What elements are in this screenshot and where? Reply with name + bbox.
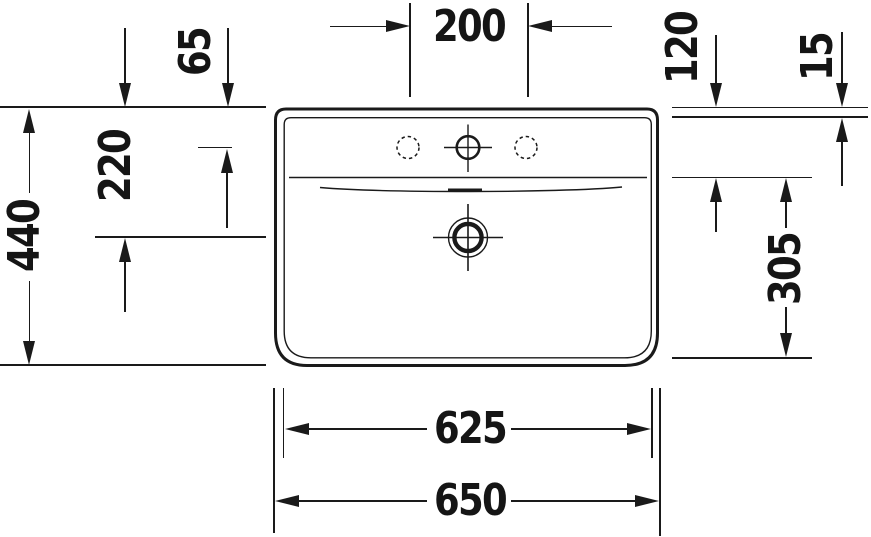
arrow-tail	[715, 200, 717, 232]
arrowhead-left	[528, 20, 552, 32]
dim-label-650: 650	[434, 479, 506, 523]
arrowhead-up	[221, 149, 233, 173]
dim-label-65: 65	[174, 28, 218, 76]
arrowhead-up	[23, 109, 35, 133]
extension-line-bowl-bottom-right	[672, 357, 812, 359]
arrow-tail	[226, 171, 228, 228]
dimension-line	[785, 200, 787, 228]
arrowhead-down	[780, 333, 792, 357]
arrowhead-up	[780, 178, 792, 202]
arrowhead-down	[836, 83, 848, 107]
dim-label-200: 200	[433, 5, 505, 49]
arrowhead-down	[222, 83, 234, 107]
extension-line-bottom-left	[0, 364, 266, 366]
dim-label-15: 15	[796, 33, 840, 81]
arrowhead-down	[23, 341, 35, 365]
arrowhead-right	[635, 495, 659, 507]
dim-label-220: 220	[94, 130, 138, 202]
arrowhead-down	[710, 83, 722, 107]
dimension-line	[511, 500, 636, 502]
extension-line	[527, 3, 529, 97]
arrow-tail	[124, 28, 126, 85]
side-hole-left	[397, 137, 419, 159]
dimension-line	[551, 26, 612, 28]
side-hole-right	[515, 137, 537, 159]
washbasin-drawing	[0, 0, 871, 537]
arrowhead-right	[627, 423, 651, 435]
arrow-tail	[124, 260, 126, 312]
arrowhead-up	[836, 118, 848, 142]
arrow-tail	[227, 28, 229, 85]
drain-crosshair	[433, 204, 503, 271]
faucet-hole-crosshair	[444, 125, 492, 173]
extension-line-top-right-outer	[672, 107, 868, 109]
dimension-line	[785, 307, 787, 334]
dimension-line	[29, 131, 31, 193]
extension-line	[409, 3, 411, 97]
arrow-tail	[715, 35, 717, 85]
dimension-line	[330, 26, 387, 28]
arrowhead-left	[285, 423, 309, 435]
dim-label-440: 440	[3, 200, 47, 272]
technical-drawing-canvas: 200 65 220 440 120 1	[0, 0, 871, 537]
arrow-tail	[841, 140, 843, 186]
dimension-line	[298, 500, 427, 502]
extension-line-650-left	[273, 388, 275, 533]
extension-line-650-right	[659, 388, 661, 536]
dimension-line	[307, 428, 427, 430]
dim-label-305: 305	[764, 233, 808, 305]
dim-label-625: 625	[434, 407, 506, 451]
arrowhead-right	[386, 20, 410, 32]
dimension-line	[511, 428, 628, 430]
dimension-line	[29, 281, 31, 342]
arrowhead-up	[119, 238, 131, 262]
arrowhead-left	[275, 495, 299, 507]
arrowhead-up	[710, 178, 722, 202]
extension-line-625-right	[651, 388, 653, 458]
dim-label-120: 120	[661, 12, 705, 84]
arrowhead-down	[119, 83, 131, 107]
